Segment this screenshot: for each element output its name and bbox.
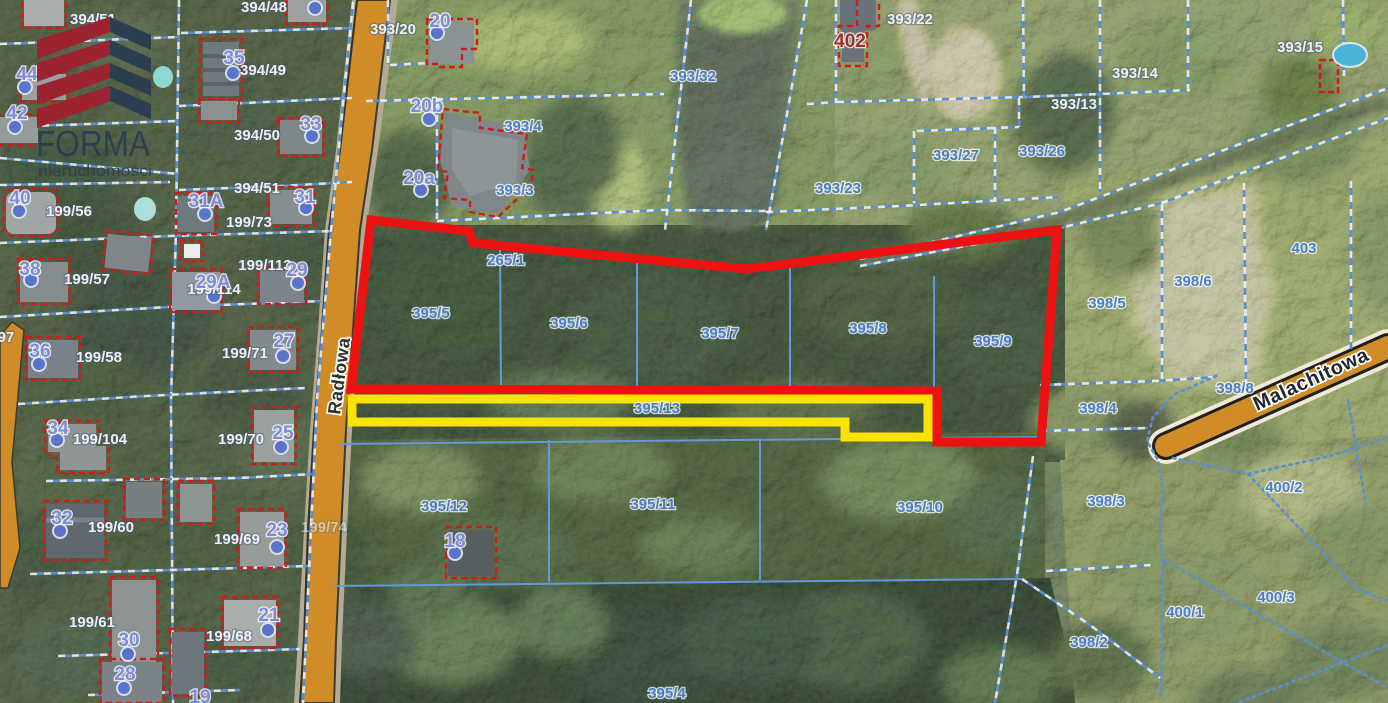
- svg-text:395/13: 395/13: [634, 400, 680, 417]
- svg-text:199/68: 199/68: [206, 628, 252, 645]
- svg-text:398/5: 398/5: [1088, 295, 1126, 312]
- svg-text:29: 29: [286, 260, 307, 281]
- svg-text:20a: 20a: [403, 168, 435, 189]
- svg-text:199/58: 199/58: [76, 349, 122, 366]
- svg-text:394/51: 394/51: [234, 180, 280, 197]
- svg-text:44: 44: [16, 64, 38, 85]
- svg-text:265/1: 265/1: [487, 252, 525, 269]
- svg-text:398/4: 398/4: [1079, 400, 1117, 417]
- svg-text:32: 32: [51, 508, 72, 529]
- svg-text:35: 35: [223, 48, 245, 69]
- svg-text:31: 31: [294, 187, 316, 208]
- svg-text:398/2: 398/2: [1070, 634, 1108, 651]
- svg-text:38: 38: [19, 259, 40, 280]
- svg-text:30: 30: [118, 630, 139, 651]
- svg-text:393/20: 393/20: [370, 21, 416, 38]
- svg-text:199/61: 199/61: [69, 614, 115, 631]
- svg-text:398/6: 398/6: [1174, 273, 1212, 290]
- svg-text:28: 28: [114, 664, 135, 685]
- svg-text:33: 33: [300, 114, 321, 135]
- svg-text:398/3: 398/3: [1087, 493, 1125, 510]
- svg-text:25: 25: [272, 423, 294, 444]
- svg-text:199/69: 199/69: [214, 531, 260, 548]
- svg-text:199/57: 199/57: [64, 271, 110, 288]
- svg-text:395/4: 395/4: [648, 685, 686, 702]
- svg-text:393/15: 393/15: [1277, 39, 1323, 56]
- svg-text:394/49: 394/49: [240, 62, 286, 79]
- svg-text:395/9: 395/9: [974, 333, 1012, 350]
- svg-text:199/113: 199/113: [238, 257, 291, 274]
- svg-text:395/5: 395/5: [412, 305, 450, 322]
- svg-text:27: 27: [273, 331, 294, 352]
- svg-text:393/14: 393/14: [1112, 65, 1159, 82]
- svg-text:199/56: 199/56: [46, 203, 92, 220]
- svg-text:400/1: 400/1: [1166, 604, 1204, 621]
- svg-text:393/26: 393/26: [1019, 143, 1065, 160]
- svg-text:20: 20: [429, 11, 450, 32]
- svg-text:20b: 20b: [411, 96, 444, 117]
- svg-text:395/11: 395/11: [630, 496, 675, 513]
- svg-text:394/48: 394/48: [241, 0, 287, 16]
- svg-text:403: 403: [1291, 240, 1316, 257]
- svg-text:395/12: 395/12: [421, 498, 467, 515]
- svg-text:199/73: 199/73: [226, 214, 272, 231]
- svg-text:395/6: 395/6: [550, 315, 588, 332]
- svg-text:400/2: 400/2: [1265, 479, 1303, 496]
- svg-text:199/60: 199/60: [88, 519, 134, 536]
- svg-text:393/13: 393/13: [1051, 96, 1097, 113]
- svg-text:395/8: 395/8: [849, 320, 887, 337]
- svg-text:19: 19: [189, 687, 210, 703]
- svg-text:199/74: 199/74: [301, 519, 348, 536]
- svg-text:97: 97: [0, 329, 14, 346]
- svg-text:23: 23: [266, 520, 287, 541]
- svg-text:199/71: 199/71: [222, 345, 268, 362]
- svg-text:199/104: 199/104: [73, 431, 128, 448]
- svg-text:393/22: 393/22: [887, 11, 933, 28]
- svg-text:21: 21: [258, 605, 280, 626]
- svg-text:42: 42: [6, 103, 27, 124]
- svg-text:393/27: 393/27: [933, 147, 979, 164]
- svg-text:199/70: 199/70: [218, 431, 264, 448]
- svg-text:395/10: 395/10: [897, 499, 943, 516]
- svg-text:393/4: 393/4: [504, 118, 542, 135]
- svg-text:400/3: 400/3: [1257, 589, 1295, 606]
- svg-text:nieruchomości: nieruchomości: [38, 163, 152, 180]
- svg-text:FORMA: FORMA: [36, 123, 150, 164]
- svg-text:29A: 29A: [196, 272, 231, 293]
- svg-text:395/7: 395/7: [701, 325, 739, 342]
- svg-text:398/8: 398/8: [1216, 380, 1254, 397]
- svg-text:402: 402: [834, 31, 866, 52]
- svg-text:393/23: 393/23: [815, 180, 861, 197]
- svg-text:18: 18: [444, 531, 465, 552]
- svg-text:394/50: 394/50: [234, 127, 280, 144]
- svg-text:31A: 31A: [189, 191, 224, 212]
- svg-text:393/3: 393/3: [496, 182, 534, 199]
- svg-text:36: 36: [29, 341, 50, 362]
- svg-text:40: 40: [9, 188, 30, 209]
- svg-text:34: 34: [47, 418, 69, 439]
- svg-text:393/32: 393/32: [670, 68, 716, 85]
